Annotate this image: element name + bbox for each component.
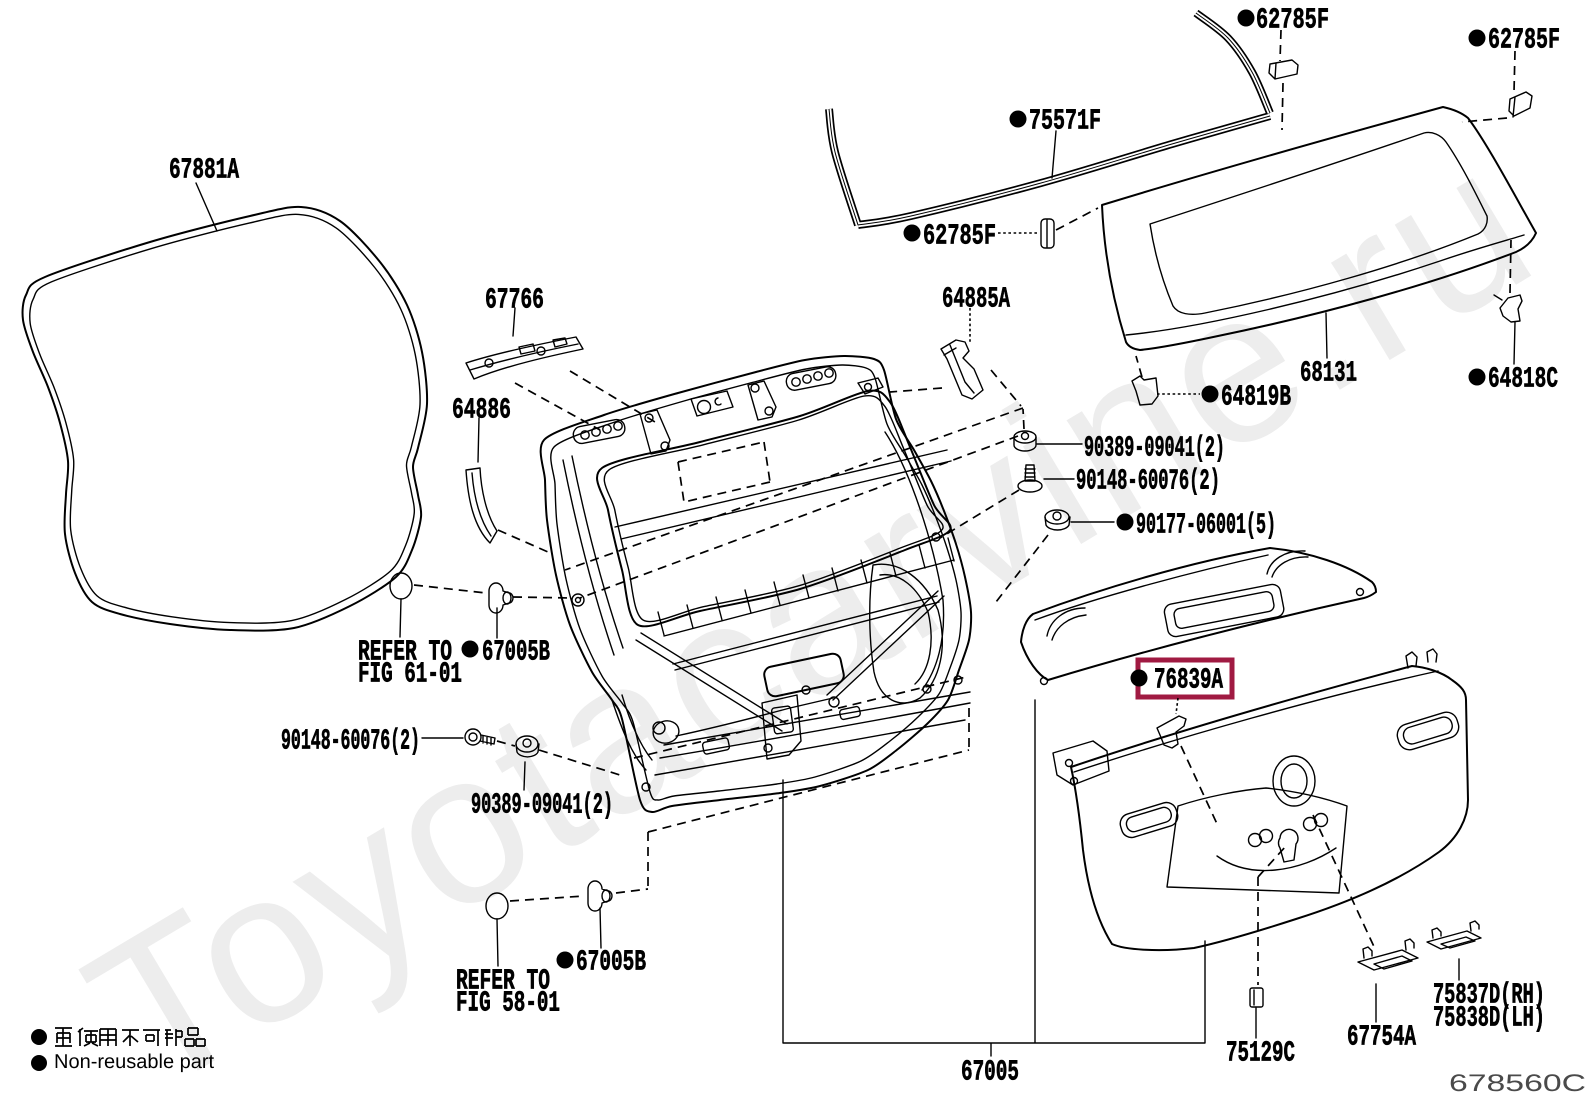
svg-text:90148-60076(2): 90148-60076(2) bbox=[281, 725, 420, 758]
svg-text:62785F: 62785F bbox=[1256, 4, 1329, 37]
svg-text:678560C: 678560C bbox=[1449, 1070, 1586, 1097]
svg-text:90177-06001(5): 90177-06001(5) bbox=[1136, 509, 1276, 542]
svg-text:Non-reusable part: Non-reusable part bbox=[54, 1051, 215, 1073]
svg-text:67754A: 67754A bbox=[1347, 1021, 1416, 1054]
svg-text:75838D(LH): 75838D(LH) bbox=[1433, 1002, 1545, 1035]
svg-text:75129C: 75129C bbox=[1226, 1037, 1295, 1070]
svg-text:FIG 58-01: FIG 58-01 bbox=[456, 987, 560, 1020]
svg-text:64819B: 64819B bbox=[1221, 381, 1291, 414]
svg-text:68131: 68131 bbox=[1300, 357, 1357, 390]
svg-text:90389-09041(2): 90389-09041(2) bbox=[471, 789, 613, 822]
svg-text:62785F: 62785F bbox=[923, 220, 996, 253]
svg-text:64885A: 64885A bbox=[942, 283, 1010, 316]
svg-text:64886: 64886 bbox=[452, 394, 511, 427]
svg-text:62785F: 62785F bbox=[1488, 24, 1560, 57]
svg-text:67005B: 67005B bbox=[482, 636, 550, 669]
svg-text:75571F: 75571F bbox=[1029, 105, 1101, 138]
svg-text:67005B: 67005B bbox=[576, 946, 646, 979]
svg-text:76839A: 76839A bbox=[1154, 664, 1223, 697]
svg-text:FIG 61-01: FIG 61-01 bbox=[358, 658, 462, 691]
svg-text:64818C: 64818C bbox=[1488, 363, 1558, 396]
svg-text:90148-60076(2): 90148-60076(2) bbox=[1076, 465, 1220, 498]
svg-text:67005: 67005 bbox=[961, 1056, 1019, 1089]
svg-text:67881A: 67881A bbox=[169, 154, 239, 187]
svg-text:90389-09041(2): 90389-09041(2) bbox=[1084, 432, 1225, 465]
